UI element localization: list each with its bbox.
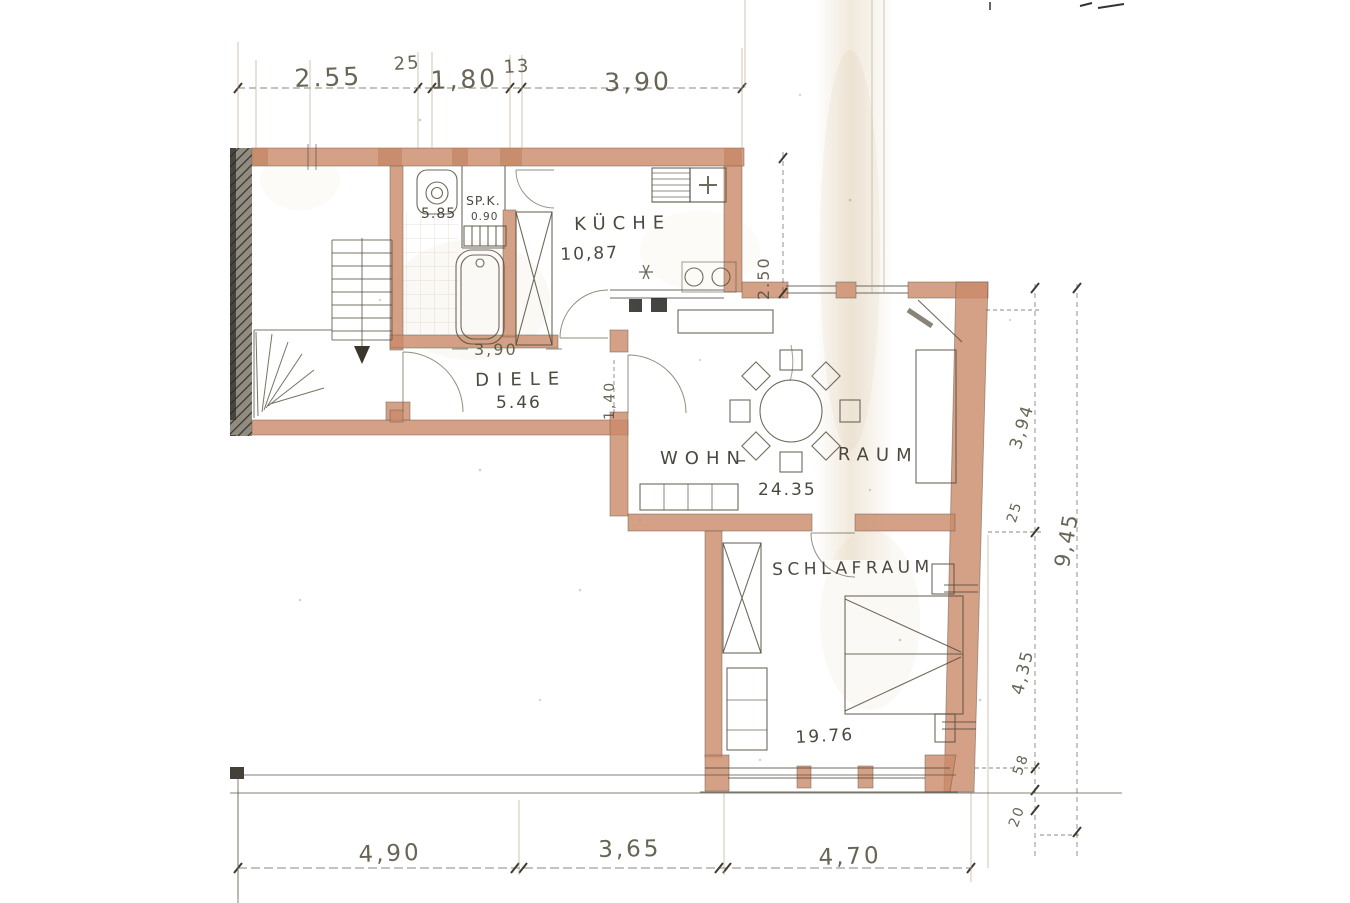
- chimney-flues: [629, 298, 667, 312]
- room-label-diele: DIELE: [475, 368, 567, 391]
- dresser-icon: [727, 668, 767, 750]
- dim-kitchen-depth: 2.50: [754, 256, 773, 300]
- room-area-kueche: 10,87: [560, 243, 619, 265]
- room-label-raum: RAUM: [838, 444, 919, 466]
- dim-top-e: 3,90: [604, 67, 672, 97]
- sideboard-icon: [678, 310, 773, 333]
- sofa-icon: [916, 350, 956, 483]
- room-area-wohnraum: 24.35: [758, 480, 817, 500]
- wardrobe-icon: [723, 543, 761, 653]
- room-label-schlafraum: SCHLAFRAUM: [772, 557, 934, 580]
- sink-icon: [652, 168, 726, 202]
- dim-diele-depth: 1,40: [602, 381, 618, 420]
- dim-top-c: 1,80: [430, 64, 499, 95]
- dim-top-d: 13: [503, 56, 531, 78]
- room-area-diele: 5.46: [496, 393, 542, 413]
- scanned-floor-plan-page: 2.55 25 1,80 13 3,90 5.85 SP.K. 0.90 KÜC…: [0, 0, 1350, 903]
- corner-window-mark: [908, 300, 962, 342]
- radiator-icon: [640, 484, 738, 510]
- room-area-bad: 5.85: [421, 206, 456, 222]
- room-area-schlafraum: 19.76: [795, 725, 855, 748]
- existing-wall-hatch: [230, 148, 252, 436]
- staircase: [254, 238, 392, 418]
- room-label-wohn: WOHN: [660, 448, 747, 469]
- margin-marks: [990, 2, 1124, 10]
- scan-stains: [260, 0, 1011, 761]
- dim-bottom-a: 4,90: [358, 840, 422, 868]
- livingroom-furniture: [640, 300, 962, 510]
- dim-top-a: 2.55: [294, 62, 363, 93]
- room-label-wohn-sep: –: [737, 450, 748, 471]
- room-label-kueche: KÜCHE: [574, 212, 671, 235]
- room-area-spk: 0.90: [471, 211, 498, 223]
- dim-diele-width: 3,90: [474, 340, 518, 359]
- dim-bottom-b: 3,65: [598, 836, 662, 863]
- dim-top-b: 25: [393, 52, 421, 75]
- dim-bottom-c: 4,70: [818, 843, 882, 871]
- room-label-spk: SP.K.: [466, 193, 501, 208]
